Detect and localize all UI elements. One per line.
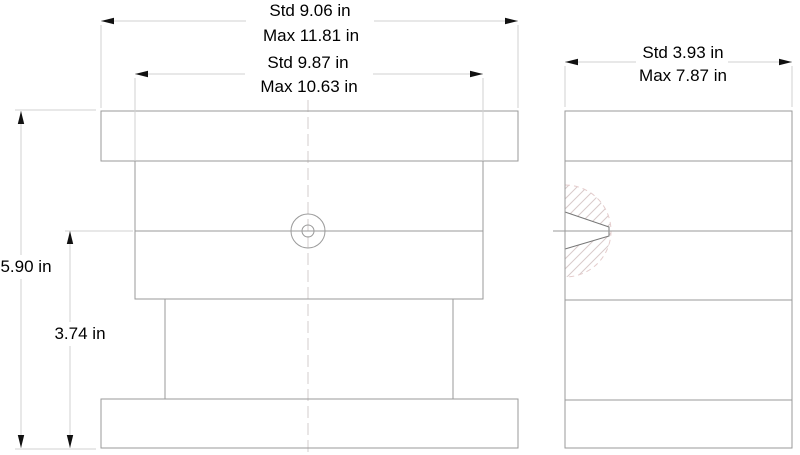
front-view — [101, 111, 518, 448]
arrow-up-icon — [67, 231, 73, 244]
dim-front-body-max-label: Max 10.63 in — [257, 77, 360, 96]
dim-side-max-label: Max 7.87 in — [636, 66, 730, 85]
dim-side-std-label: Std 3.93 in — [639, 43, 726, 62]
side-outline — [565, 111, 792, 448]
arrow-left-icon — [135, 71, 148, 77]
arrow-down-icon — [67, 435, 73, 448]
drawing-canvas: Std 9.06 in Max 11.81 in Std 9.87 in Max… — [0, 0, 800, 455]
dimension-overall-height — [15, 110, 96, 449]
arrow-left-icon — [101, 18, 114, 24]
arrow-right-icon — [779, 59, 792, 65]
arrow-up-icon — [18, 111, 24, 124]
arrow-left-icon — [565, 59, 578, 65]
side-view — [553, 111, 792, 448]
dim-overall-height-label: 5.90 in — [0, 257, 55, 276]
dim-front-outer-std-label: Std 9.06 in — [266, 1, 353, 20]
front-top-flange — [101, 111, 518, 161]
arrow-down-icon — [18, 435, 24, 448]
arrow-right-icon — [505, 18, 518, 24]
front-main-body — [135, 161, 483, 299]
arrow-right-icon — [470, 71, 483, 77]
dim-front-body-std-label: Std 9.87 in — [264, 53, 351, 72]
dim-lower-height-label: 3.74 in — [51, 324, 108, 343]
dim-front-outer-max-label: Max 11.81 in — [260, 26, 362, 45]
front-bottom-flange — [101, 399, 518, 448]
front-neck — [165, 299, 453, 399]
